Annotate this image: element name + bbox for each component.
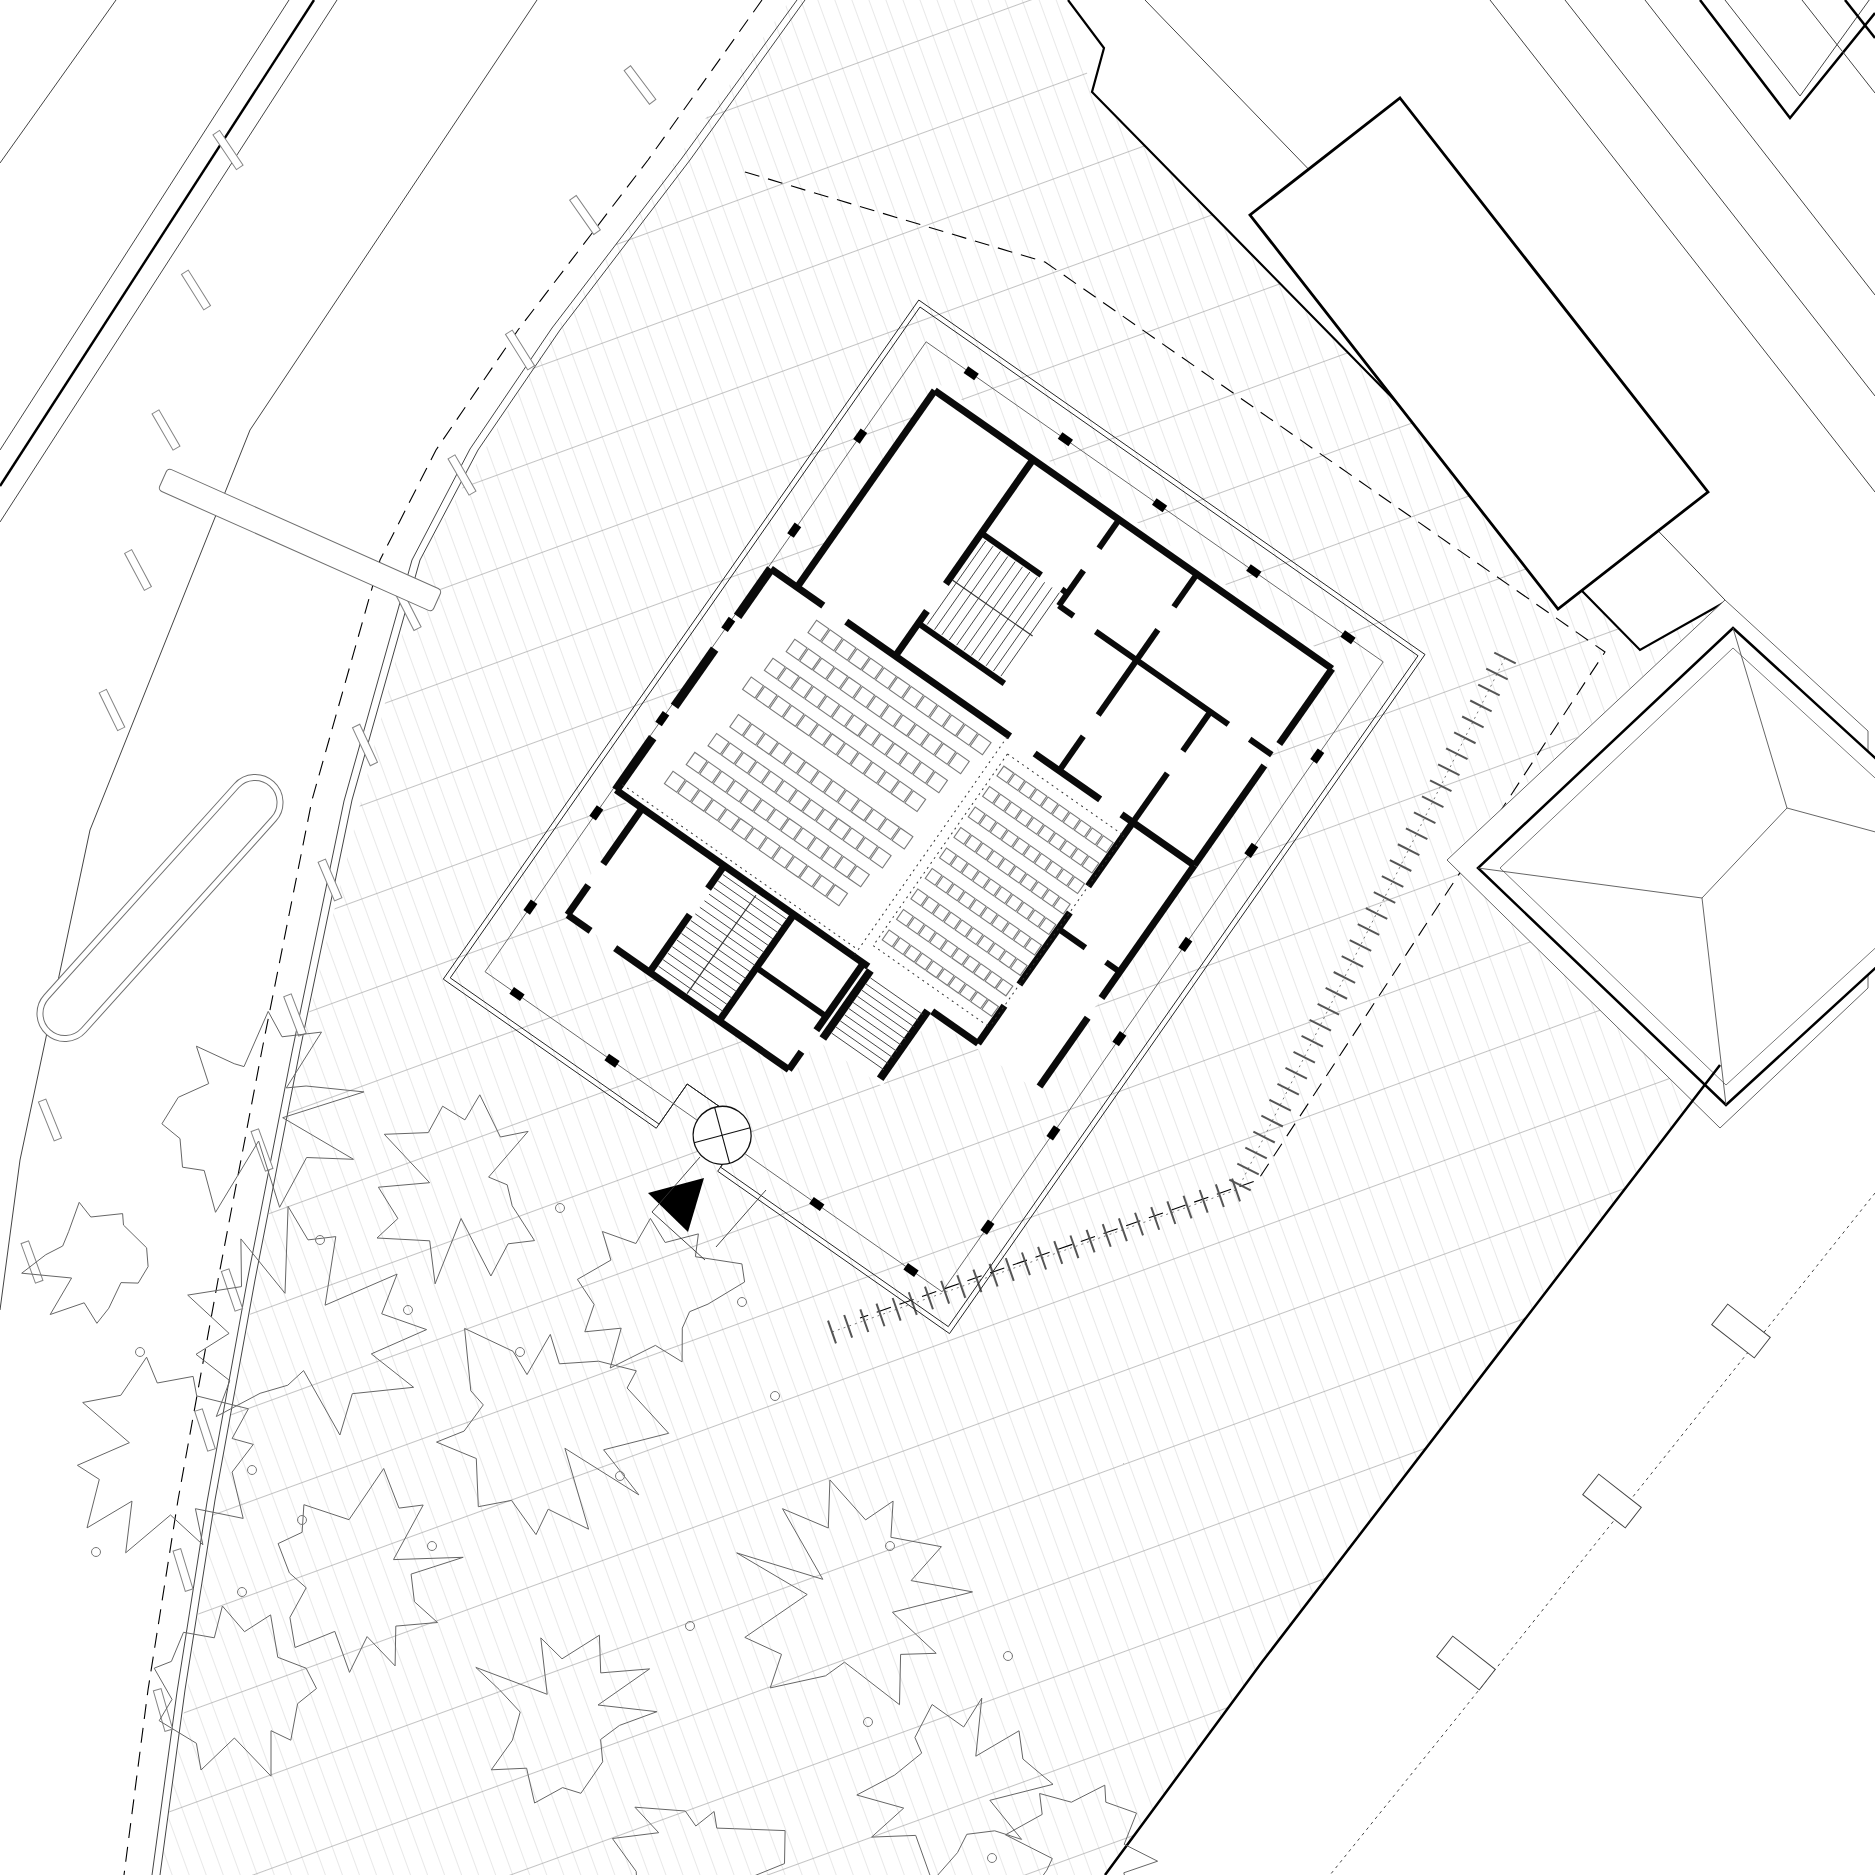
wall-segment [1062, 589, 1068, 593]
architectural-site-plan [0, 0, 1875, 1875]
site-plan-canvas [0, 0, 1875, 1875]
